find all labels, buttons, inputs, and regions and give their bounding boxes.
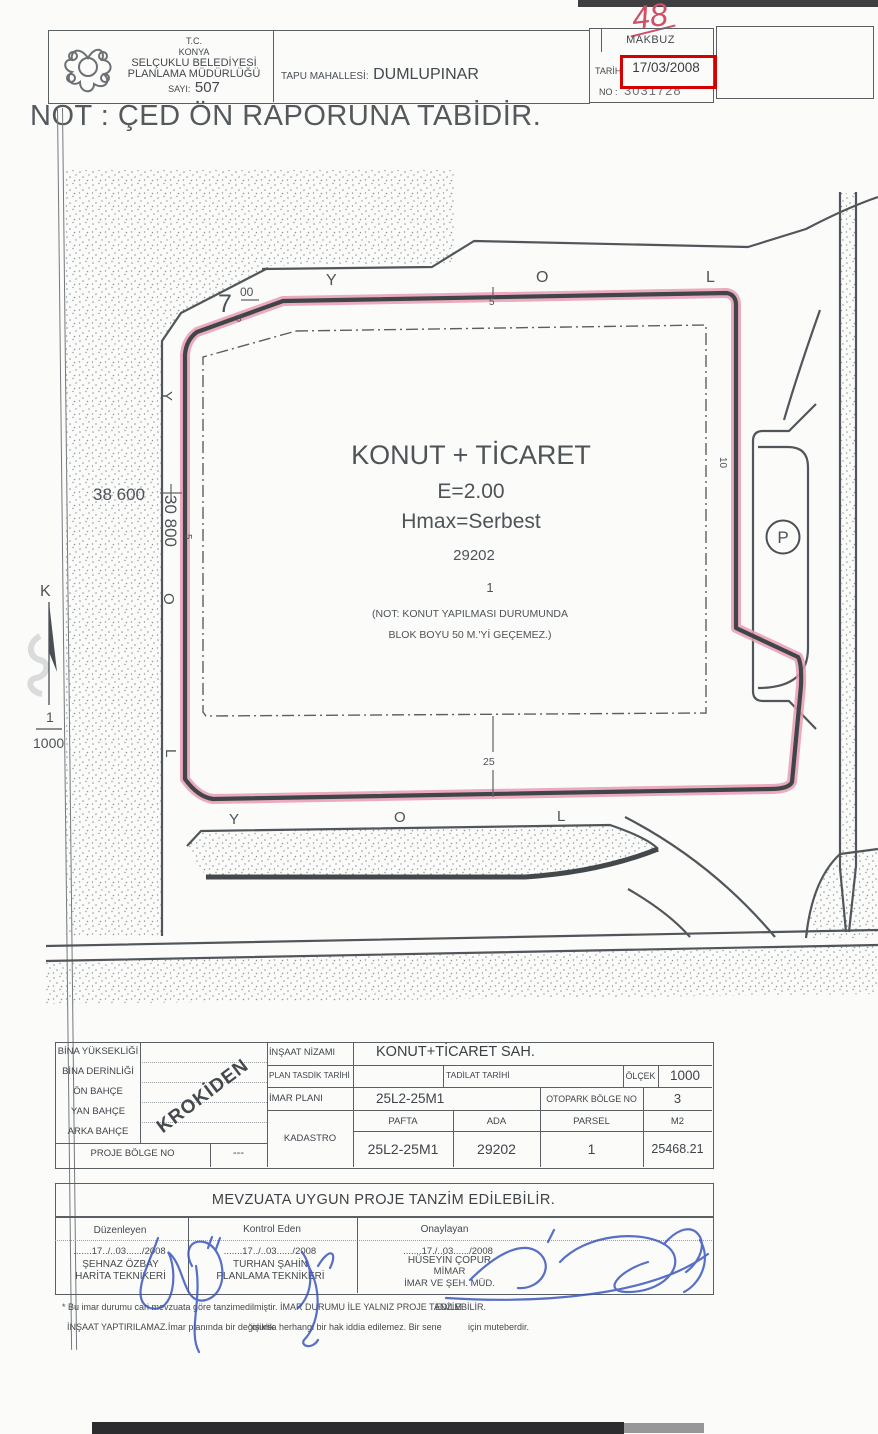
- makbuz-title: MAKBUZ: [589, 34, 712, 46]
- insaat-nizami-label: İNŞAAT NİZAMI: [269, 1047, 335, 1057]
- table-line: [353, 1131, 712, 1132]
- dim-10: 10: [717, 457, 728, 469]
- olcek-label: ÖLÇEK: [623, 1071, 658, 1081]
- date-highlight-box: [620, 55, 717, 89]
- dim-7: 7: [218, 290, 232, 318]
- table-line: [55, 1143, 267, 1144]
- imar-plani-value: 25L2-25M1: [376, 1091, 444, 1106]
- col-header-ada: ADA: [453, 1116, 540, 1127]
- col-header-pafta: PAFTA: [353, 1116, 453, 1127]
- scan-edge-strip: [578, 0, 878, 7]
- col-header-parsel: PARSEL: [540, 1116, 643, 1127]
- kadastro-label: KADASTRO: [267, 1133, 353, 1144]
- road-label: Y: [158, 391, 175, 401]
- road-label: L: [706, 269, 715, 286]
- proje-bolge-value: ---: [210, 1147, 267, 1159]
- north-label: K: [40, 583, 51, 600]
- zone-title: KONUT + TİCARET: [351, 439, 591, 470]
- sayi-value: 507: [195, 79, 220, 96]
- site-plan: 7 00 5 5 5 10 25 38 600 30 800 Y O L Y O…: [0, 128, 878, 1040]
- tapu-value: DUMLUPINAR: [373, 66, 479, 83]
- parking-label: P: [777, 528, 788, 547]
- table-row-label: ARKA BAHÇE: [57, 1126, 139, 1137]
- ada-value: 29202: [453, 1141, 540, 1157]
- road-label: Y: [326, 272, 337, 289]
- dim-38600: 38 600: [93, 485, 145, 504]
- zone-note-2: BLOK BOYU 50 M.'Yİ GEÇEMEZ.): [388, 628, 551, 641]
- otopark-value: 3: [643, 1091, 712, 1106]
- dim-30800: 30 800: [161, 495, 180, 547]
- table-line: [267, 1065, 712, 1066]
- scale-numerator: 1: [46, 709, 54, 725]
- tadilat-label: TADİLAT TARİHİ: [446, 1070, 510, 1080]
- pafta-value: 25L2-25M1: [353, 1141, 453, 1157]
- imar-plani-label: İMAR PLANI: [269, 1093, 323, 1104]
- m2-value: 25468.21: [643, 1142, 712, 1156]
- empty-receipt-box: [716, 26, 874, 99]
- ada-number: 29202: [453, 547, 495, 564]
- dimension-marks: [160, 287, 493, 797]
- table-row-label: BİNA YÜKSEKLİĞİ: [57, 1046, 139, 1057]
- org-block: T.C. KONYA SELÇUKLU BELEDİYESİ PLANLAMA …: [120, 36, 268, 95]
- north-compass: K: [40, 583, 57, 705]
- col-header-m2: M2: [643, 1116, 712, 1127]
- road-label: O: [536, 269, 548, 286]
- scan-bottom-bar: [92, 1422, 624, 1434]
- table-line: [267, 1087, 712, 1088]
- scanned-zoning-document: 48 T.C. KONYA SELÇUKLU BELEDİYESİ PLANLA…: [0, 0, 878, 1434]
- header-divider: [273, 30, 274, 102]
- road-label: L: [162, 749, 179, 757]
- dim-5-left: 5: [182, 534, 193, 540]
- table-row-label: YAN BAHÇE: [57, 1106, 139, 1117]
- table-row-label: BİNA DERİNLİĞİ: [57, 1066, 139, 1077]
- tapu-line: TAPU MAHALLESİ: DUMLUPINAR: [281, 66, 479, 84]
- zone-hmax: Hmax=Serbest: [401, 510, 541, 533]
- dim-25: 25: [483, 756, 495, 768]
- table-row-label: ÖN BAHÇE: [57, 1086, 139, 1097]
- parsel-value: 1: [540, 1141, 643, 1157]
- sayi-label: SAYI:: [168, 84, 190, 94]
- parsel-number: 1: [486, 580, 493, 595]
- org-tc: T.C.: [120, 36, 268, 47]
- scale-indicator: 1 1000: [33, 709, 64, 751]
- municipality-seal-logo: [58, 36, 118, 98]
- otopark-label: OTOPARK BÖLGE NO: [540, 1094, 643, 1104]
- olcek-value: 1000: [658, 1068, 712, 1083]
- proje-bolge-label: PROJE BÖLGE NO: [55, 1148, 210, 1159]
- insaat-nizami-value: KONUT+TİCARET SAH.: [376, 1044, 535, 1060]
- scan-bottom-bar-tail: [624, 1423, 704, 1433]
- tarih-label: TARİH: [595, 66, 621, 76]
- dim-7-sup: 00: [240, 285, 254, 299]
- no-label: NO :: [599, 87, 618, 97]
- table-line: [140, 1042, 141, 1143]
- makbuz-tick: [601, 28, 602, 52]
- table-line: [443, 1065, 444, 1087]
- zone-note-1: (NOT: KONUT YAPILMASI DURUMUNDA: [372, 608, 568, 620]
- dim-5-top: 5: [489, 297, 495, 308]
- tapu-label: TAPU MAHALLESİ:: [281, 71, 369, 82]
- road-label: O: [394, 809, 406, 826]
- road-label: O: [160, 593, 177, 605]
- table-line: [267, 1042, 268, 1167]
- scale-denominator: 1000: [33, 735, 64, 751]
- pencil-smudge: [30, 636, 46, 694]
- road-label: Y: [229, 811, 239, 828]
- pen-signatures: [0, 1200, 878, 1380]
- plan-tasdik-label: PLAN TASDİK TARİHİ: [269, 1071, 350, 1080]
- road-label: L: [557, 808, 565, 825]
- zone-emsal: E=2.00: [437, 480, 504, 503]
- table-line: [267, 1110, 712, 1111]
